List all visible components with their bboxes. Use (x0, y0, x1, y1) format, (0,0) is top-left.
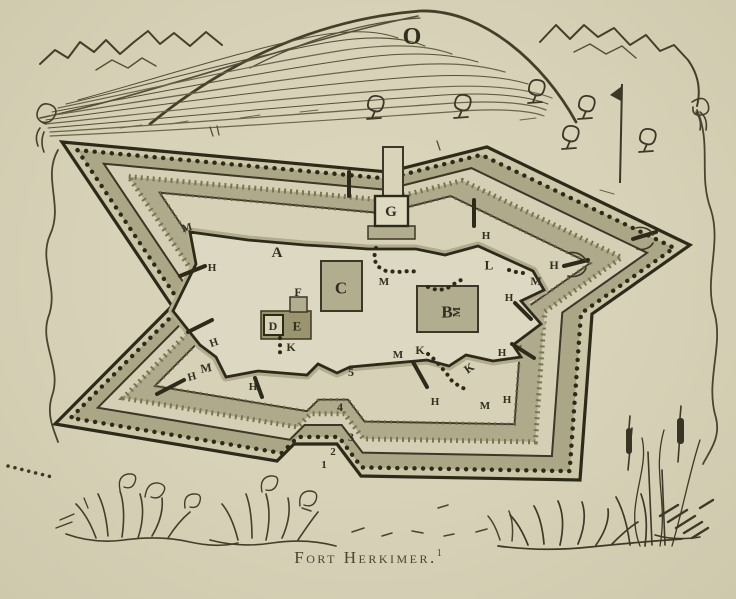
mountain-peaks-right-2 (574, 44, 636, 58)
label-H: H (498, 347, 507, 359)
fort-herkimer-engraving: OABCDEFGLKKKMMMMMMMHHHHHHHHHH54321 (0, 0, 736, 599)
label-M: M (451, 306, 463, 317)
label-H: H (431, 396, 440, 408)
grass-center-marks (302, 505, 513, 541)
cattails (626, 406, 700, 546)
caption-footnote-marker: 1 (437, 548, 442, 559)
hill-streak (46, 86, 552, 124)
mountain-peaks-left (40, 31, 222, 64)
label-O: O (403, 24, 422, 50)
gate-tower (383, 147, 403, 197)
label-H: H (208, 262, 217, 274)
label-M: M (393, 349, 404, 361)
tree-icon (454, 95, 471, 118)
fort-plan: OABCDEFGLKKKMMMMMMMHHHHHHHHHH54321 (55, 24, 690, 480)
engraving-page: OABCDEFGLKKKMMMMMMMHHHHHHHHHH54321 (0, 0, 736, 599)
label-2: 2 (330, 446, 336, 458)
building-F (290, 297, 307, 312)
label-C: C (335, 279, 347, 298)
label-D: D (269, 319, 278, 333)
label-L: L (485, 258, 494, 273)
cattail-head-icon (677, 418, 684, 444)
mountain-peaks-left-2 (96, 58, 156, 70)
caption-text: Fort Herkimer. (294, 548, 437, 567)
label-H: H (549, 258, 559, 272)
sheet-edge-left (46, 150, 58, 442)
sheet-edge-right (697, 110, 717, 464)
label-A: A (272, 245, 283, 261)
field-ticks (210, 126, 440, 150)
tree-icon (528, 80, 545, 103)
log-hatch (660, 500, 713, 538)
label-H: H (503, 394, 512, 406)
cattail-head-icon (626, 428, 632, 454)
tree-icon (562, 126, 579, 149)
label-5: 5 (348, 365, 354, 379)
label-M: M (530, 274, 541, 288)
label-K: K (286, 340, 296, 354)
tree-icon (578, 96, 595, 119)
small-tuft (488, 511, 513, 541)
label-M: M (480, 400, 491, 412)
tree-icon (639, 129, 656, 152)
stray-palisade-dots (8, 466, 56, 478)
scroll-curl-right (692, 98, 709, 130)
label-1: 1 (321, 459, 327, 471)
label-3: 3 (348, 430, 354, 444)
gate-base (368, 226, 415, 239)
grass-blades (76, 491, 190, 538)
caption: Fort Herkimer.1 (294, 548, 442, 567)
grass-mid-left (210, 476, 336, 546)
grass-left (56, 474, 238, 545)
label-H: H (505, 292, 514, 304)
label-M: M (199, 360, 213, 376)
label-H: H (482, 230, 491, 242)
label-4: 4 (337, 400, 343, 414)
flagpole-group (610, 84, 622, 183)
label-K: K (415, 343, 425, 357)
ground-dashes (302, 505, 487, 536)
fiddlehead-curls (119, 474, 200, 508)
label-G: G (385, 204, 397, 220)
grass-blades (510, 494, 646, 546)
label-H: H (249, 381, 258, 393)
label-F: F (294, 285, 301, 299)
label-M: M (379, 276, 390, 288)
label-E: E (293, 319, 302, 334)
outside-dots (8, 466, 56, 478)
flag-pennant-icon (610, 86, 622, 101)
grass-right (498, 494, 682, 549)
grass-blades (222, 494, 318, 540)
